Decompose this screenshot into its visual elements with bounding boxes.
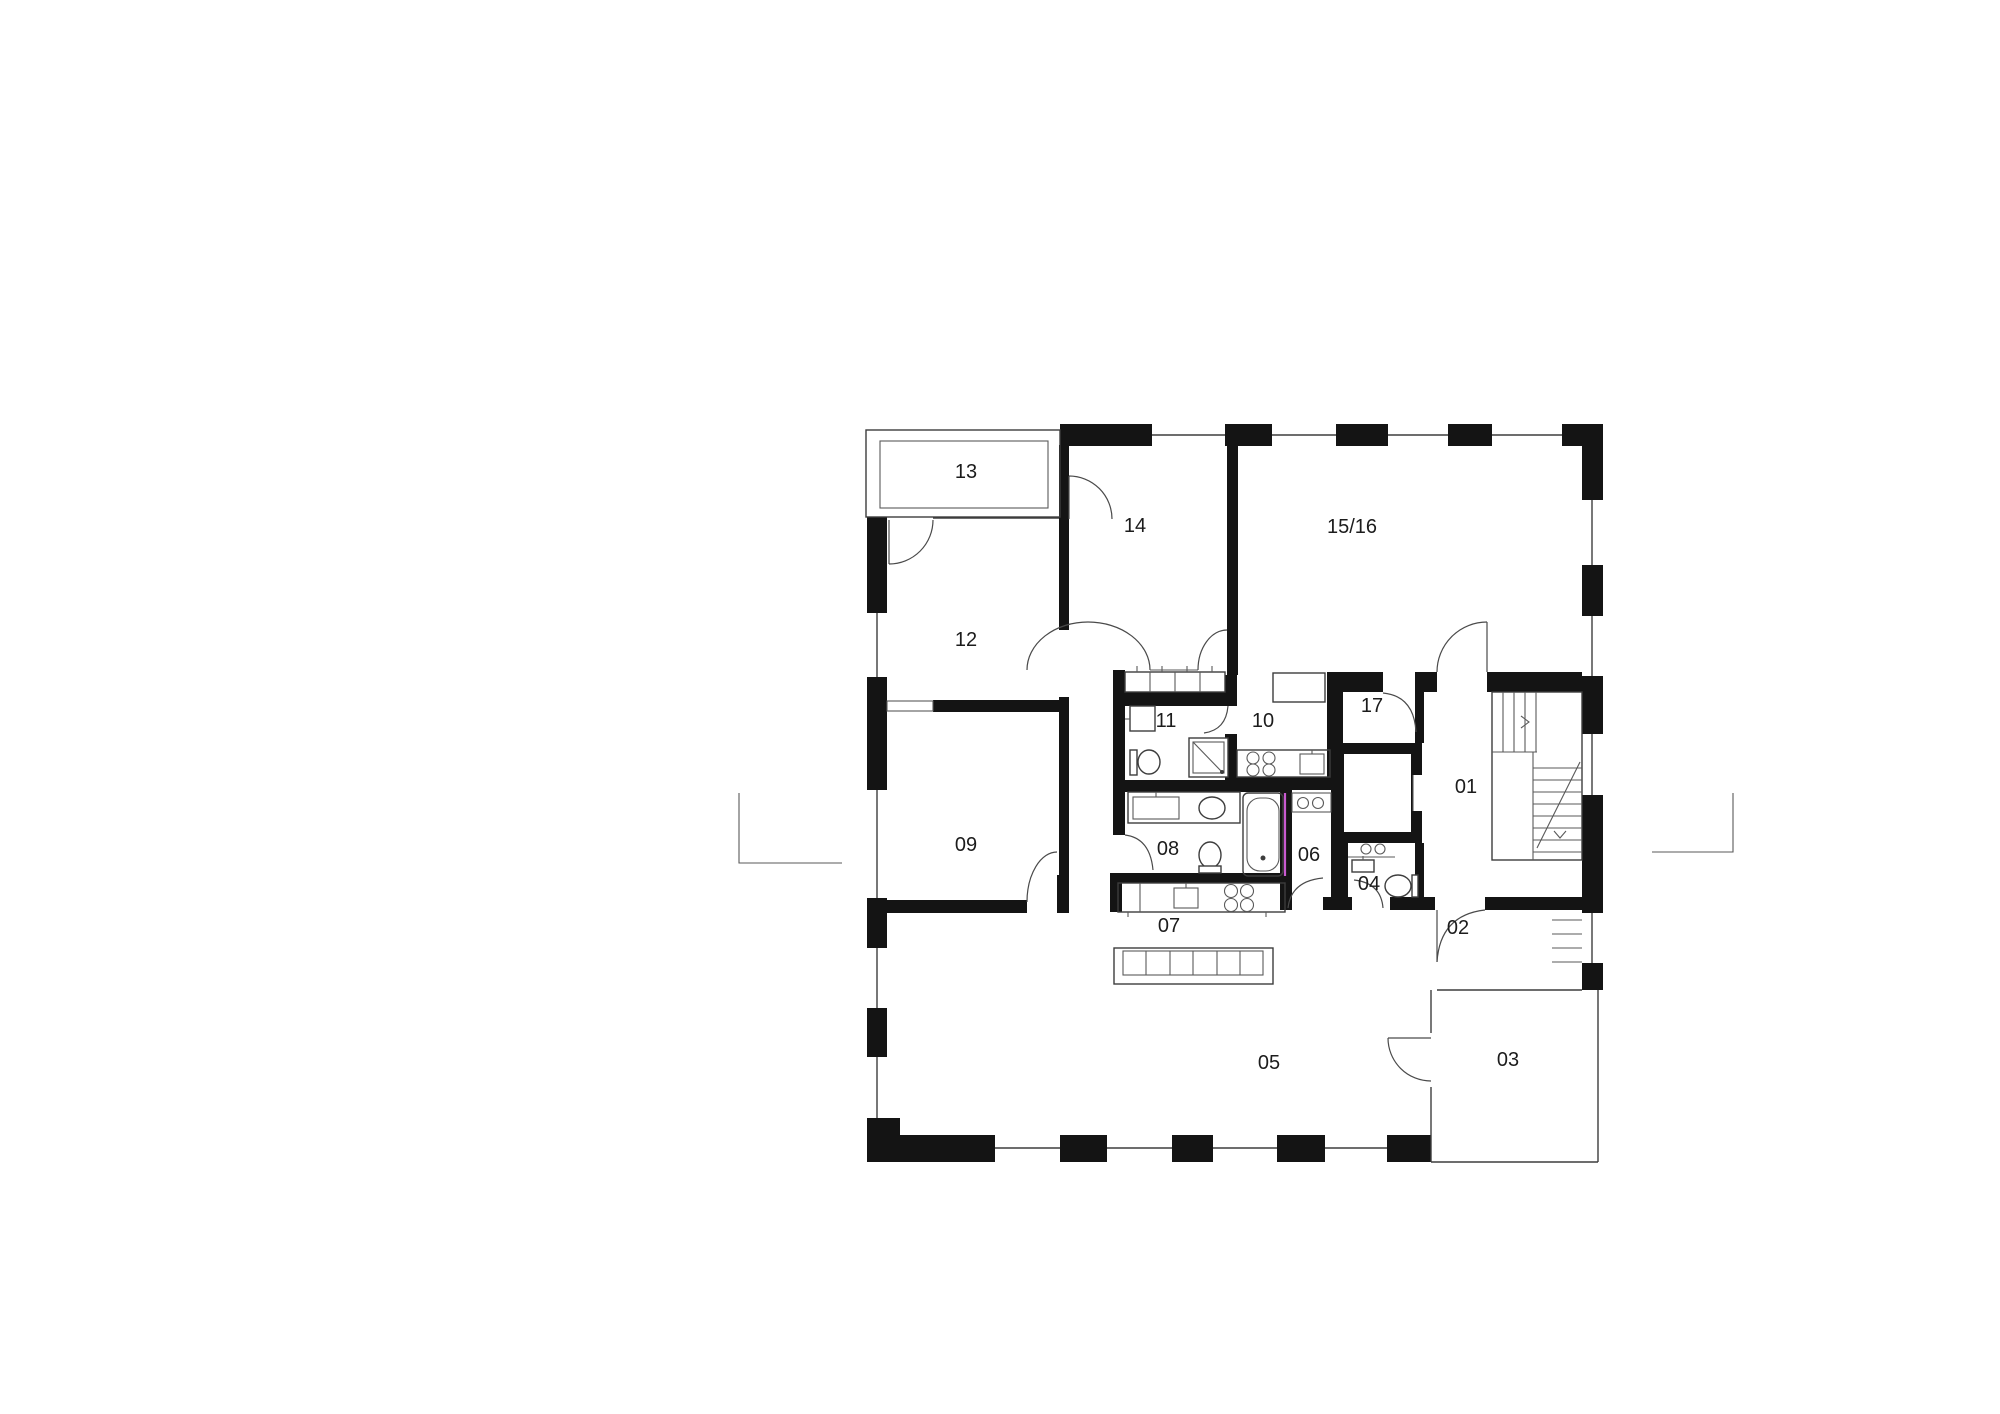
burner-icon [1241, 899, 1254, 912]
room-label-02: 02 [1447, 917, 1469, 939]
room-06-fixtures [1292, 793, 1331, 812]
toilet-tank-icon [1199, 866, 1221, 873]
terrace-steps [1552, 920, 1582, 962]
interior-window [887, 701, 933, 711]
washer-icon [1313, 798, 1324, 809]
room-label-08: 08 [1157, 838, 1179, 860]
kitchen-07-counter [1118, 883, 1285, 917]
room-label-01: 01 [1455, 776, 1477, 798]
toilet-tank-icon [1130, 750, 1137, 775]
washer-icon [1361, 844, 1371, 854]
sink-icon [1130, 706, 1155, 731]
toilet-icon [1138, 750, 1160, 774]
toilet-icon [1385, 875, 1411, 897]
kitchen-sink-icon [1300, 754, 1324, 774]
room-label-13: 13 [955, 461, 977, 483]
dining-island [1114, 948, 1273, 984]
room-label-11: 11 [1156, 710, 1177, 732]
room-label-15-16: 15/16 [1327, 516, 1377, 538]
elevator-shaft [1333, 743, 1422, 843]
room-label-05: 05 [1258, 1052, 1280, 1074]
sideboard [1273, 673, 1325, 702]
room-label-14: 14 [1124, 515, 1146, 537]
toilet-icon [1199, 842, 1221, 868]
washer-icon [1298, 798, 1309, 809]
toilet-tank-icon [1412, 875, 1418, 897]
room-label-06: 06 [1298, 844, 1320, 866]
washer-icon [1375, 844, 1385, 854]
room-label-17: 17 [1361, 695, 1383, 717]
room-label-10: 10 [1252, 710, 1274, 732]
room-label-07: 07 [1158, 915, 1180, 937]
bathtub-icon [1243, 793, 1285, 876]
room-label-04: 04 [1358, 873, 1380, 895]
shower-icon [1189, 738, 1228, 777]
terrace-03-outline [1431, 920, 1598, 1162]
staircase [1492, 692, 1582, 860]
sink-icon [1352, 860, 1374, 872]
room-label-03: 03 [1497, 1049, 1519, 1071]
basin-icon [1133, 797, 1179, 819]
room-label-12: 12 [955, 629, 977, 651]
stair-down-arrow [1554, 831, 1566, 838]
kitchen-sink-icon [1174, 888, 1198, 908]
basin-round-icon [1199, 797, 1225, 819]
burner-icon [1225, 899, 1238, 912]
burner-icon [1241, 885, 1254, 898]
burner-icon [1225, 885, 1238, 898]
bath-11-fixtures [1125, 706, 1228, 777]
floor-plan-page: 01 02 03 04 05 06 07 08 09 10 11 12 13 1… [0, 0, 2000, 1414]
room-label-09: 09 [955, 834, 977, 856]
kitchen-10-counter [1237, 750, 1330, 777]
floor-plan-drawing: 01 02 03 04 05 06 07 08 09 10 11 12 13 1… [0, 0, 2000, 1414]
